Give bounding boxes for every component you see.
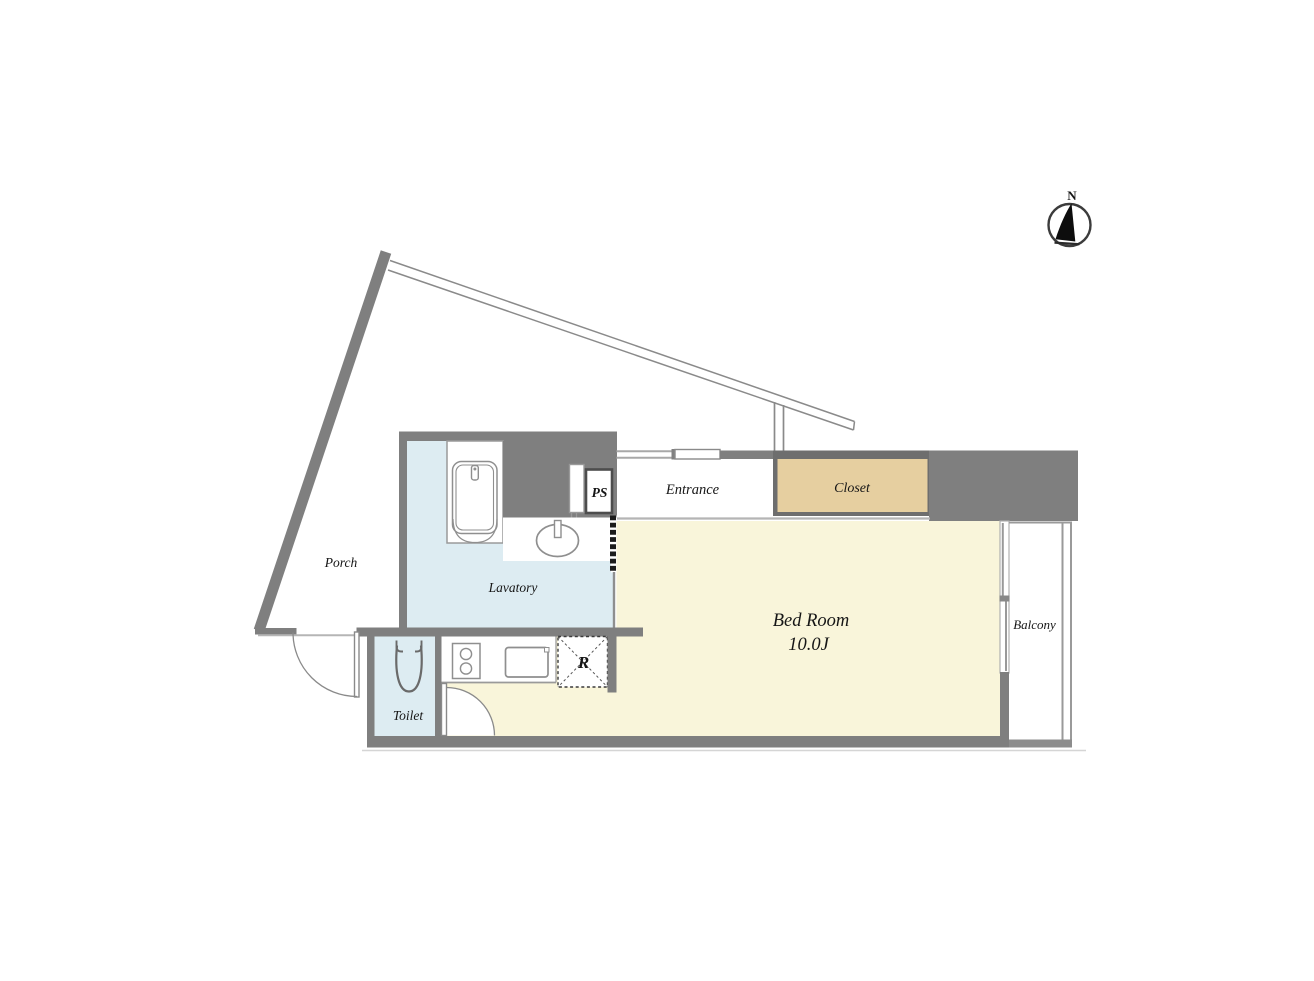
svg-text:N: N xyxy=(1067,188,1077,203)
svg-text:Bed Room: Bed Room xyxy=(773,611,850,631)
svg-text:PS: PS xyxy=(592,485,608,500)
svg-text:R: R xyxy=(577,653,589,672)
svg-text:Lavatory: Lavatory xyxy=(488,580,538,595)
svg-text:Closet: Closet xyxy=(834,481,871,496)
svg-text:10.0J: 10.0J xyxy=(788,635,829,655)
svg-text:Entrance: Entrance xyxy=(665,482,720,498)
svg-text:Toilet: Toilet xyxy=(393,708,425,723)
svg-text:Balcony: Balcony xyxy=(1013,617,1056,632)
svg-text:Porch: Porch xyxy=(324,555,358,570)
